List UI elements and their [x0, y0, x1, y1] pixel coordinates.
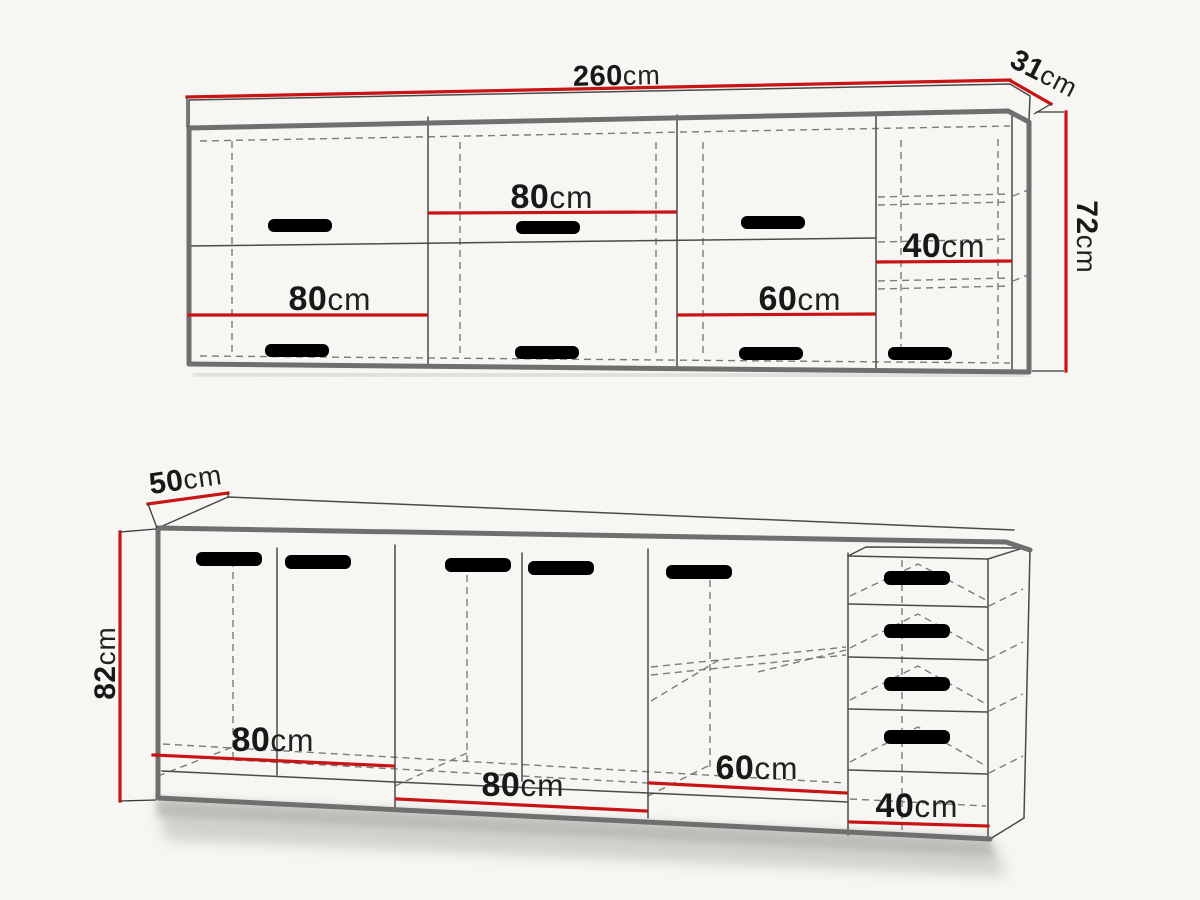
- background: [0, 0, 1200, 900]
- door-handle: [268, 219, 332, 232]
- dim-wall-width-label: 260cm: [573, 59, 661, 93]
- door-handle: [741, 216, 805, 229]
- door-handle: [285, 555, 351, 569]
- diagram-canvas: 260cm 31cm 72cm 80cm 80cm 60cm 40cm: [0, 0, 1200, 900]
- drawer-handle: [884, 730, 950, 744]
- door-handle: [666, 565, 732, 579]
- wall-cabinet-shadow: [194, 374, 1026, 376]
- dim-base-section-80-mid: 80cm: [482, 766, 565, 804]
- door-handle: [196, 552, 262, 566]
- drawer-handle: [884, 624, 950, 638]
- dim-wall-height-label: 72cm: [1070, 200, 1103, 274]
- door-handle: [888, 347, 952, 360]
- dim-base-height-label: 82cm: [89, 626, 122, 700]
- door-handle: [516, 221, 580, 234]
- door-handle: [445, 558, 511, 572]
- door-handle: [515, 346, 579, 359]
- drawer-handle: [884, 571, 950, 585]
- cabinet-dimension-diagram: 260cm 31cm 72cm 80cm 80cm 60cm 40cm: [0, 0, 1200, 900]
- dim-wall-section-80-mid: 80cm: [511, 178, 594, 216]
- dim-base-section-60: 60cm: [716, 749, 799, 787]
- dim-wall-section-40: 40cm: [903, 227, 986, 265]
- dim-wall-section-60: 60cm: [759, 280, 842, 318]
- drawer-handle: [884, 677, 950, 691]
- dim-base-section-80-left: 80cm: [232, 721, 315, 759]
- door-handle: [528, 561, 594, 575]
- door-handle: [739, 347, 803, 360]
- dim-base-section-40: 40cm: [876, 787, 959, 825]
- door-handle: [265, 344, 329, 357]
- dim-wall-section-80-left: 80cm: [289, 280, 372, 318]
